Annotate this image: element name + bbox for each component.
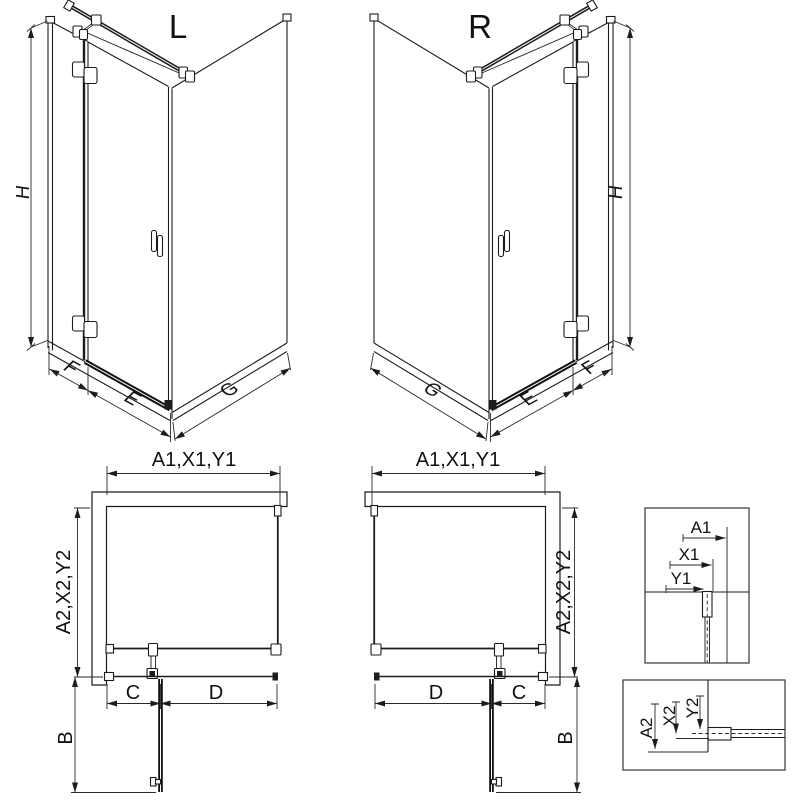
plan-left-width-dim-label: A1,X1,Y1 — [152, 449, 237, 471]
iso-left-height-dim-label: H — [13, 184, 34, 201]
plan-left-door-swing-dim-label: B — [55, 731, 77, 744]
detail-x1-label: X1 — [679, 545, 700, 564]
plan-right-c-dim-label: C — [512, 682, 526, 704]
detail-a1-label: A1 — [691, 518, 712, 537]
detail-y2-label: Y2 — [683, 698, 702, 719]
plan-right-door-swing-dim-label: B — [555, 731, 577, 744]
technical-drawing-page: A1 X1 Y1 A2 X2 Y2 L H F E G R H F E G A1… — [0, 0, 800, 800]
plan-left-c-dim-label: C — [126, 682, 140, 704]
shower-enclosure-technical-drawing: A1 X1 Y1 A2 X2 Y2 L H F E G R H F E G A1… — [0, 0, 800, 800]
iso-right-title-label: R — [468, 8, 492, 45]
plan-left-depth-dim-label: A2,X2,Y2 — [53, 550, 75, 635]
plan-right-d-dim-label: D — [429, 682, 443, 704]
detail-a2-label: A2 — [637, 718, 656, 739]
iso-right-height-dim-label: H — [606, 184, 627, 201]
plan-left-d-dim-label: D — [209, 682, 223, 704]
detail-y1-label: Y1 — [671, 569, 692, 588]
detail-x2-label: X2 — [660, 706, 679, 727]
plan-right-depth-dim-label: A2,X2,Y2 — [553, 550, 575, 635]
plan-right-width-dim-label: A1,X1,Y1 — [416, 449, 501, 471]
iso-left-title-label: L — [169, 8, 187, 45]
